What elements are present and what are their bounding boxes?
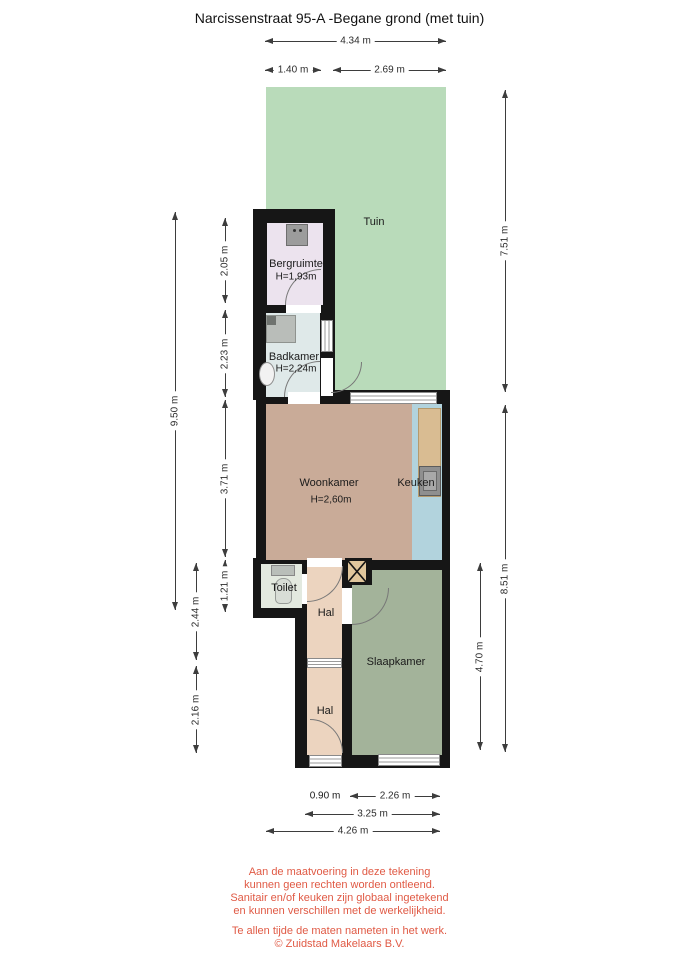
dim-left-121: 1.21 m [225,560,226,612]
bergruimte-height: H=1,93m [276,272,317,283]
tuin-label: Tuin [364,216,385,228]
disclaimer: Aan de maatvoering in deze tekening kunn… [0,866,679,951]
dim-right-851: 8.51 m [505,405,506,752]
sink-icon [259,362,275,386]
slaapkamer-window [378,754,440,766]
disclaimer-line: kunnen geen rechten worden ontleend. [0,879,679,892]
disclaimer-line: en kunnen verschillen met de werkelijkhe… [0,905,679,918]
dim-bottom-090-label: 0.90 m [310,791,341,802]
woonkamer-height: H=2,60m [311,495,352,506]
woonkamer-window [350,392,437,404]
disclaimer-line: Te allen tijde de maten nameten in het w… [0,925,679,938]
badkamer-height: H=2,24m [276,364,317,375]
hal-onder-label: Hal [317,705,334,717]
dim-top-434: 4.34 m [265,41,446,42]
toilet-cistern-icon [271,565,295,576]
slaapkamer-label: Slaapkamer [367,656,426,668]
dim-bottom-426: 4.26 m [266,831,440,832]
hal-boven-label: Hal [318,607,335,619]
dim-left-244: 2.44 m [196,563,197,660]
shaft-icon [348,561,366,582]
disclaimer-line: © Zuidstad Makelaars B.V. [0,938,679,951]
voordeur-gap [309,755,342,767]
hal-tussendeur [307,658,342,668]
bergruimte-door-gap [286,305,321,313]
dim-left-216: 2.16 m [196,666,197,753]
badkamer-window [321,320,333,352]
dim-right-470: 4.70 m [480,563,481,750]
keuken-label: Keuken [397,477,434,489]
washing-machine-icon [286,224,308,246]
dim-left-223: 2.23 m [225,310,226,397]
dim-top-140: 1.40 m [265,70,321,71]
toilet-label: Toilet [271,582,297,594]
disclaimer-line: Aan de maatvoering in deze tekening [0,866,679,879]
woonkamer-label: Woonkamer [299,477,358,489]
badkamer-label: Badkamer [269,351,319,363]
bergruimte-label: Bergruimte [269,258,323,270]
dim-left-371: 3.71 m [225,400,226,557]
shower-icon [266,315,296,343]
page-title: Narcissenstraat 95-A -Begane grond (met … [0,10,679,26]
dim-bottom-325: 3.25 m [305,814,440,815]
dim-left-950: 9.50 m [175,212,176,610]
slaapkamer-door-gap [342,588,352,624]
floor-plan: Narcissenstraat 95-A -Begane grond (met … [0,0,679,960]
disclaimer-line: Sanitair en/of keuken zijn globaal inget… [0,892,679,905]
dim-right-751: 7.51 m [505,90,506,392]
disclaimer-spacer [0,918,679,925]
dim-bottom-226: 2.26 m [350,796,440,797]
dim-top-269: 2.69 m [333,70,446,71]
dim-left-205: 2.05 m [225,218,226,303]
